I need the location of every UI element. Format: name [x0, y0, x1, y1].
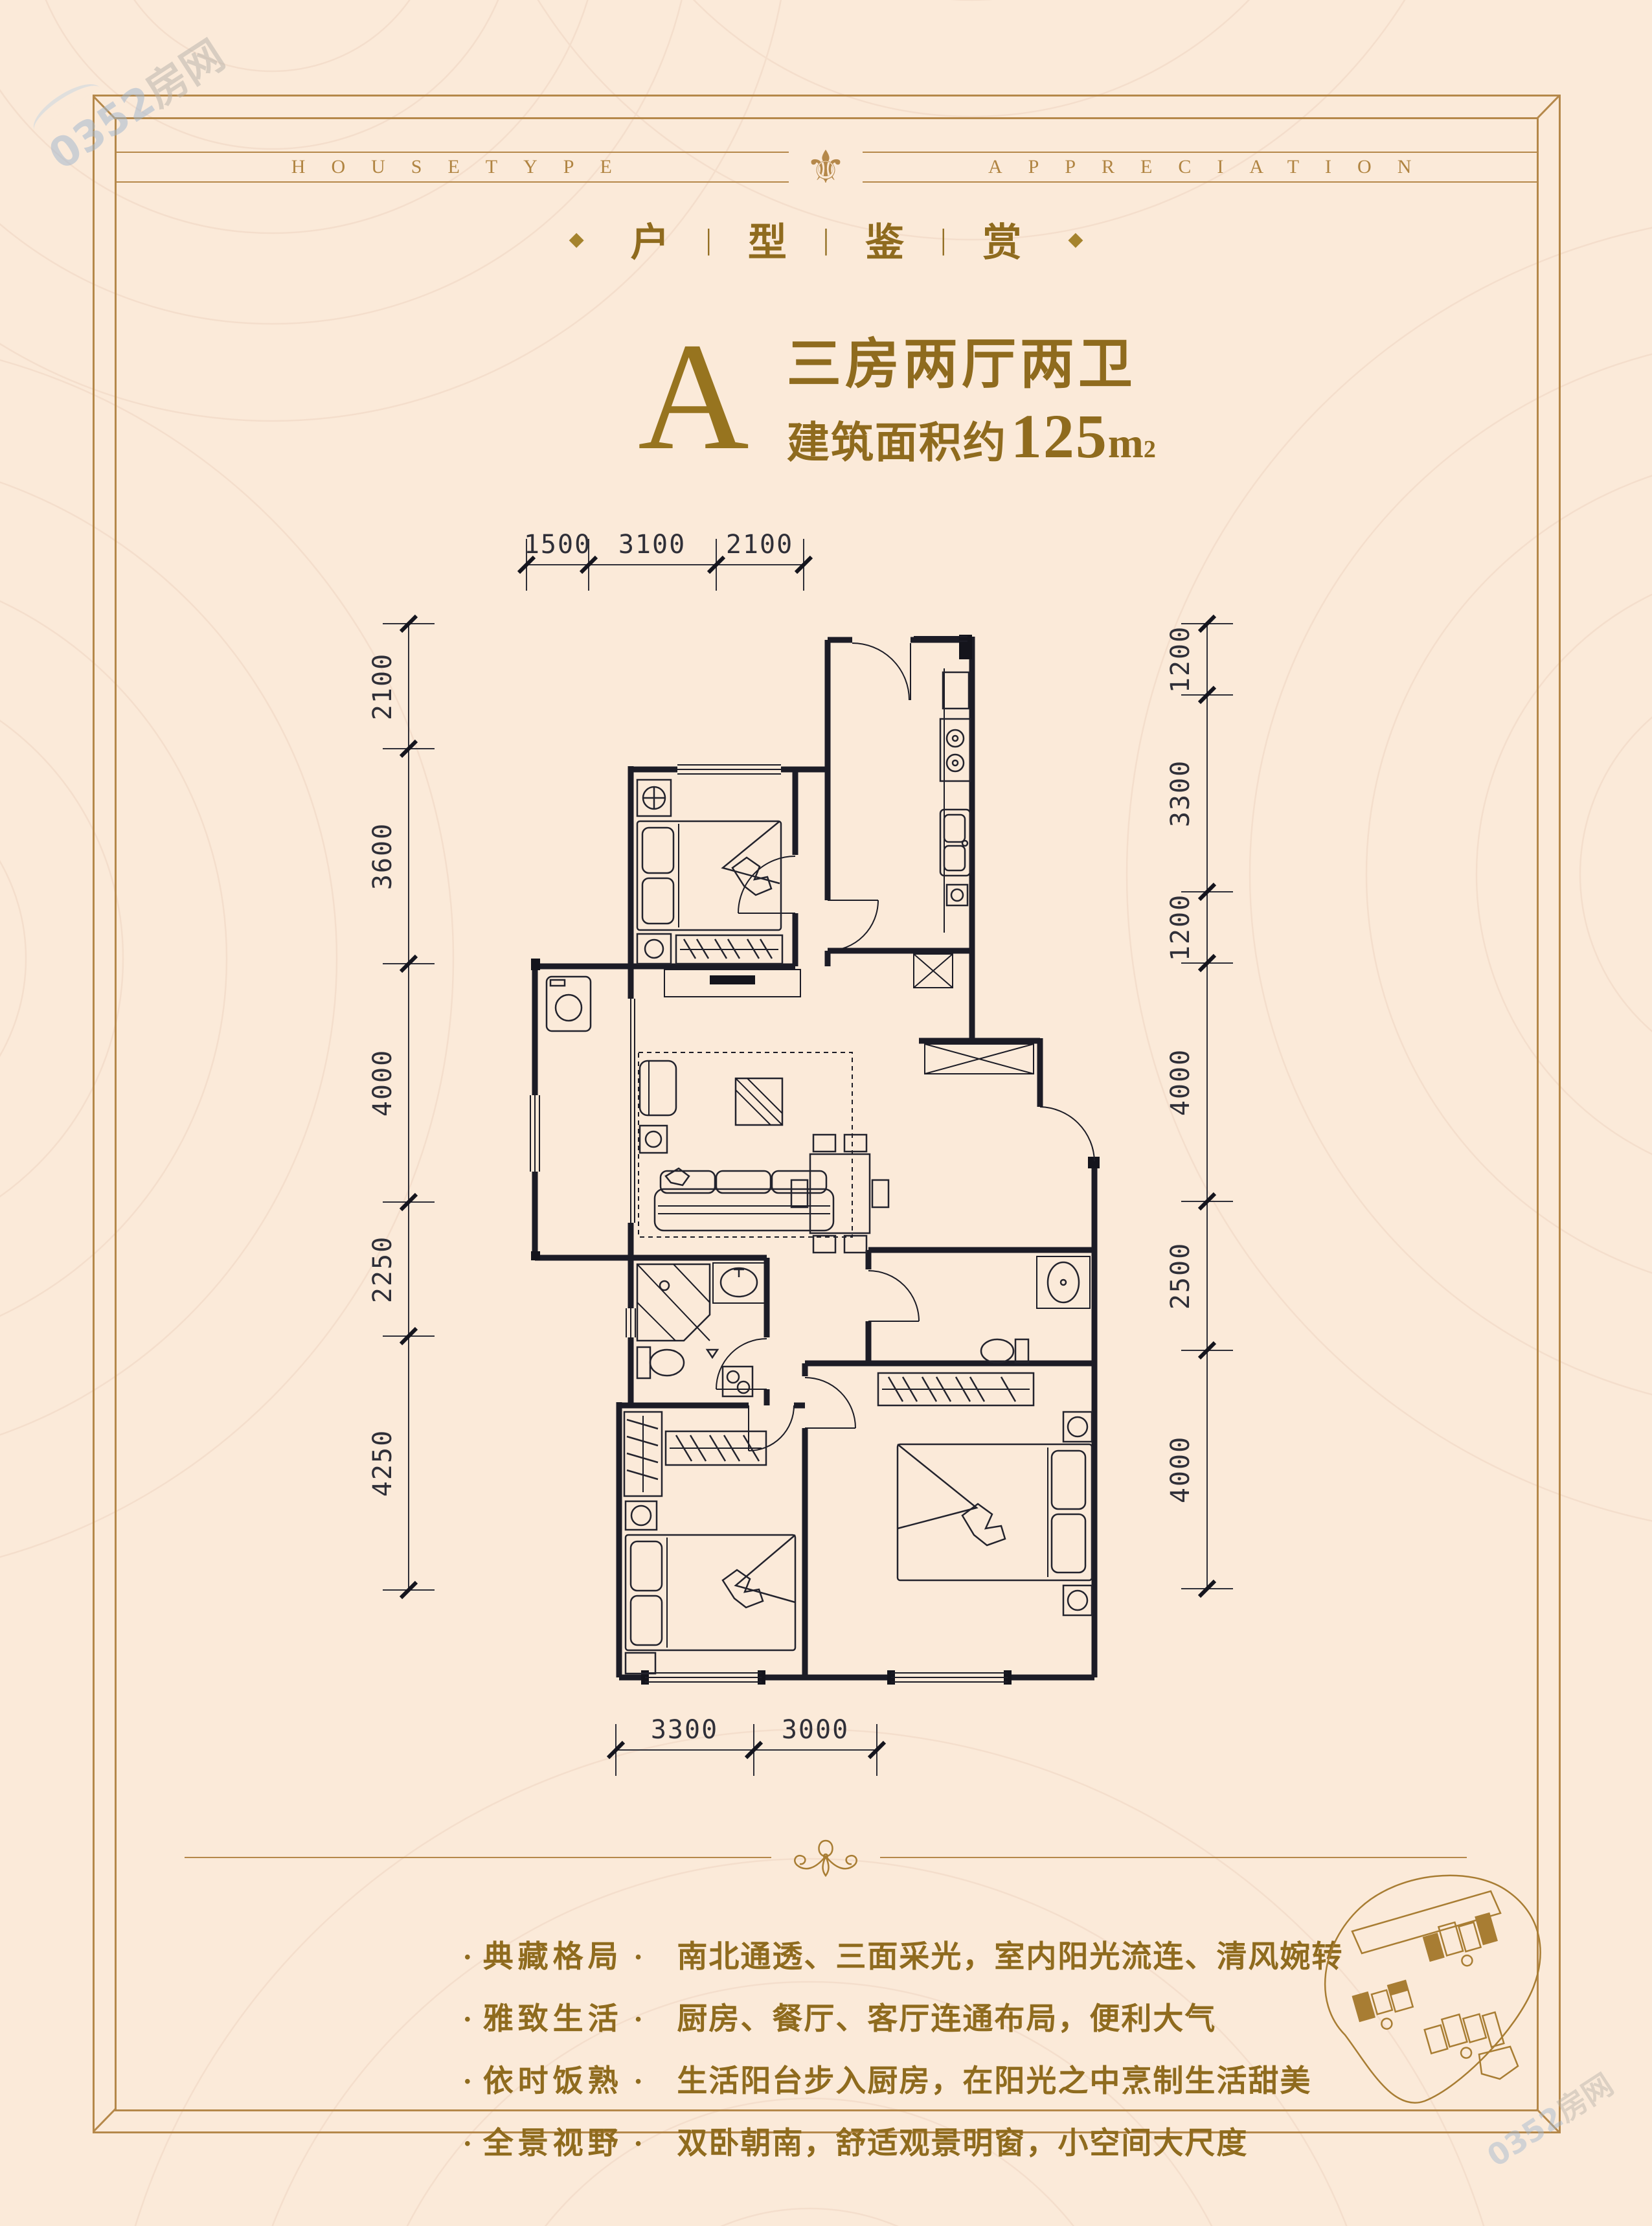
dim-label: 1200	[1166, 894, 1195, 961]
header-band-right: APPRECIATION	[863, 152, 1537, 183]
walls	[531, 635, 1100, 1685]
feature-label: 雅致生活	[483, 1993, 623, 2038]
header-left-text: HOUSETYPE	[266, 156, 638, 178]
feature-label: 依时饭熟	[483, 2056, 623, 2100]
balcony-washer	[547, 977, 591, 1031]
dim-label: 3600	[368, 823, 398, 890]
dim-label: 2250	[368, 1236, 398, 1303]
header-band-left: HOUSETYPE	[115, 152, 789, 183]
unit-layout: 三房两厅两卫	[787, 334, 1156, 396]
feature-desc: 南北通透、三面采光，室内阳光流连、清风婉转	[677, 1931, 1343, 1976]
feature-desc: 双卧朝南，舒适观景明窗，小空间大尺度	[677, 2118, 1248, 2163]
feature-row: · 雅致生活 · 厨房、餐厅、客厅连通布局，便利大气	[452, 1993, 1372, 2038]
dim-label: 2100	[368, 653, 398, 720]
dim-label: 4000	[1166, 1049, 1195, 1116]
ac-platform	[925, 1044, 1034, 1074]
dim-label: 3100	[618, 530, 686, 560]
divider-line	[185, 1857, 771, 1858]
area-sup: 2	[1144, 435, 1156, 464]
dimension-right: 1200 3300 1200 4000 2500 4000	[1166, 616, 1233, 1596]
dim-label: 2100	[726, 530, 793, 560]
title-separator: |	[940, 222, 946, 256]
title-separator: |	[706, 222, 712, 256]
header-right-text: APPRECIATION	[962, 156, 1437, 178]
dim-label: 2500	[1166, 1242, 1195, 1310]
section-divider	[185, 1837, 1467, 1878]
area-unit: m	[1108, 419, 1144, 468]
bullet: ·	[462, 2002, 473, 2037]
feature-row: · 典藏格局 · 南北通透、三面采光，室内阳光流连、清风婉转	[452, 1931, 1372, 1976]
bullet: ·	[633, 2126, 644, 2161]
dimension-bottom: 3300 3000	[608, 1715, 885, 1776]
feature-list: · 典藏格局 · 南北通透、三面采光，室内阳光流连、清风婉转 · 雅致生活 · …	[452, 1931, 1372, 2180]
flourish-icon	[787, 1837, 865, 1878]
title-char: 鉴	[865, 211, 904, 267]
feature-label: 典藏格局	[483, 1931, 623, 1976]
bathroom2-fixtures	[981, 1256, 1090, 1363]
title-char: 户	[631, 211, 670, 267]
dim-label: 3300	[1166, 760, 1195, 827]
poster-page: HOUSETYPE ⚜ APPRECIATION ◆ 户 | 型 | 鉴 | 赏…	[0, 0, 1652, 2226]
site-buildings	[1352, 1913, 1518, 2079]
bullet: ·	[633, 2002, 644, 2037]
bedroom2-furniture	[624, 1412, 795, 1674]
dim-label: 4000	[368, 1049, 398, 1117]
fleur-de-lis-icon: ⚜	[806, 153, 846, 181]
dimension-left: 2100 3600 4000 2250 4250	[368, 616, 435, 1598]
dim-label: 3000	[782, 1715, 849, 1745]
bathroom1-fixtures	[637, 1263, 765, 1396]
floor-plan: 1500 3100 2100 2100 3600 4000 2250 4250 …	[360, 505, 1293, 1800]
living-room-furniture	[639, 970, 852, 1237]
site-plan	[1277, 1841, 1565, 2122]
bullet: ·	[462, 2126, 473, 2161]
bullet: ·	[462, 1940, 473, 1975]
dim-label: 4250	[368, 1429, 398, 1497]
diamond-icon: ◆	[1068, 228, 1083, 251]
page-title: ◆ 户 | 型 | 鉴 | 赏 ◆	[0, 211, 1652, 267]
area-label: 建筑面积约	[787, 408, 1007, 470]
unit-area: 建筑面积约 125 m 2	[787, 400, 1156, 472]
area-value: 125	[1011, 400, 1108, 472]
bullet: ·	[633, 2064, 644, 2099]
dim-label: 4000	[1166, 1436, 1195, 1503]
kitchen-fixtures	[914, 668, 970, 988]
windows	[530, 637, 1008, 1682]
dimension-top: 1500 3100 2100	[519, 530, 811, 591]
title-char: 型	[748, 211, 787, 267]
header-band: HOUSETYPE ⚜ APPRECIATION	[115, 153, 1537, 181]
dim-label: 1500	[524, 530, 591, 560]
unit-letter: A	[638, 316, 749, 478]
feature-desc: 厨房、餐厅、客厅连通布局，便利大气	[677, 1993, 1216, 2038]
dim-label: 3300	[651, 1715, 718, 1745]
feature-row: · 全景视野 · 双卧朝南，舒适观景明窗，小空间大尺度	[452, 2118, 1372, 2163]
title-char: 赏	[982, 211, 1021, 267]
diamond-icon: ◆	[569, 228, 584, 251]
bullet: ·	[633, 1940, 644, 1975]
dim-label: 1200	[1166, 626, 1195, 693]
title-separator: |	[823, 222, 829, 256]
feature-desc: 生活阳台步入厨房，在阳光之中烹制生活甜美	[677, 2056, 1311, 2100]
feature-row: · 依时饭熟 · 生活阳台步入厨房，在阳光之中烹制生活甜美	[452, 2056, 1372, 2100]
bedroom3-furniture	[878, 1373, 1092, 1615]
bullet: ·	[462, 2064, 473, 2099]
bedroom1-furniture	[637, 780, 782, 964]
unit-heading: A 三房两厅两卫 建筑面积约 125 m 2	[638, 316, 1156, 478]
feature-label: 全景视野	[483, 2118, 623, 2163]
